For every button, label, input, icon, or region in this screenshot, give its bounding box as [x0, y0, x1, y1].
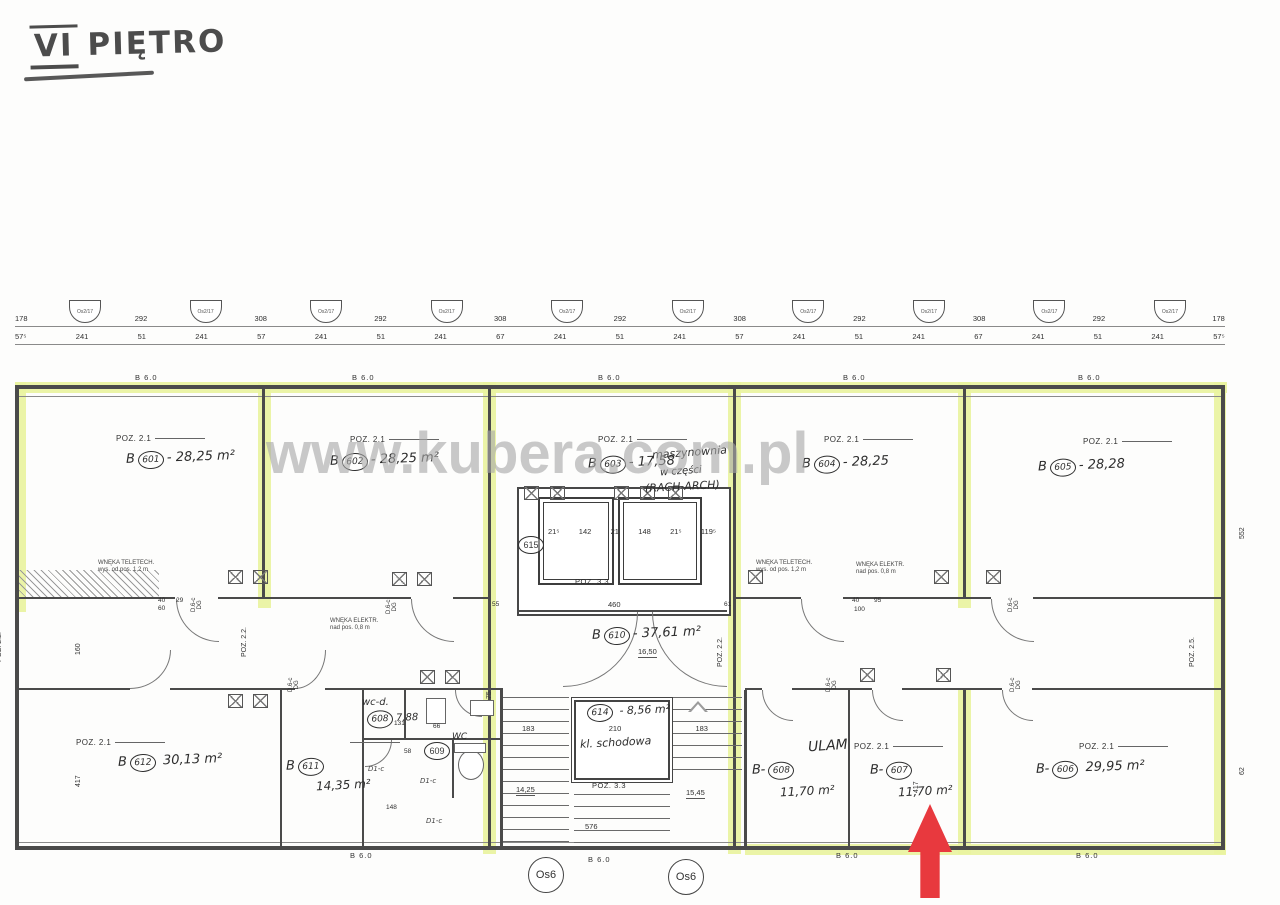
- room-number-bubble: 612: [130, 754, 157, 773]
- list-item: 51: [138, 332, 146, 341]
- poz-label: POZ. 2.1: [116, 434, 205, 443]
- list-item: 308: [254, 314, 267, 323]
- wall-segment: [15, 688, 130, 690]
- vertical-dimension: 160: [75, 643, 82, 655]
- list-item: 241: [912, 332, 925, 341]
- list-item: 142: [579, 527, 592, 536]
- room-bubble-609: 609: [424, 742, 450, 760]
- door-label-d1c: D1-c: [368, 766, 384, 773]
- beam-label: B 6.0: [588, 855, 611, 864]
- room-number-bubble: 606: [1052, 760, 1079, 779]
- room-prefix: B-: [752, 762, 766, 777]
- nook-line1: WNĘKA TELETECH.: [98, 560, 154, 567]
- beam-label: B 6.0: [843, 373, 866, 382]
- room-area: 37,61 m²: [641, 624, 701, 641]
- list-item: 241: [554, 332, 567, 341]
- room-area: 8,56 m²: [627, 703, 671, 717]
- beam-label: B 6.0: [350, 851, 373, 860]
- room-label-601: B601- 28,25 m²: [126, 448, 236, 470]
- dimension: 148: [386, 804, 397, 811]
- vertical-dimension: 62: [1239, 767, 1246, 775]
- wall-segment: [902, 688, 1002, 690]
- wall-segment: [170, 688, 295, 690]
- room-label-612: B612 30,13 m²: [118, 751, 223, 773]
- door-label-d1c: D1-c: [420, 778, 436, 785]
- door-arc: [762, 690, 793, 721]
- room-label-611: B611: [286, 757, 328, 776]
- door-code-label: D.6-cDG: [288, 678, 300, 692]
- room-number-bubble: 601: [138, 451, 165, 470]
- list-item: 241: [434, 332, 447, 341]
- list-item: 57: [257, 332, 265, 341]
- wall-segment: [15, 846, 1225, 850]
- door-grade: DG: [1016, 680, 1022, 689]
- nook-annotation: WNĘKA TELETECH. wys. od pos. 1,2 m: [98, 560, 154, 574]
- door-arc: [801, 599, 844, 642]
- wall-segment: [1033, 597, 1223, 599]
- list-item: 51: [1094, 332, 1102, 341]
- nook-line1: WNĘKA ELEKTR.: [856, 562, 904, 569]
- floor-roman-numeral: VI: [29, 24, 78, 69]
- cistern-fixture: [454, 743, 486, 753]
- dimension-line: [15, 344, 1225, 345]
- list-item: 51: [855, 332, 863, 341]
- wall-hatch-box: [445, 670, 460, 684]
- room-label-610: B610- 37,61 m²: [592, 624, 702, 646]
- dimension: 58: [404, 748, 411, 755]
- poz-label: POZ. 2.1: [1079, 742, 1168, 751]
- nook-line1: WNĘKA ELEKTR.: [330, 618, 378, 625]
- room-prefix: B-: [1036, 761, 1050, 776]
- nook-line2: wys. od pos. 1,2 m: [756, 567, 812, 574]
- list-item: 292: [374, 314, 387, 323]
- wall-segment: [218, 597, 411, 599]
- list-item: 21⁵: [548, 527, 559, 536]
- dimension-row-1: 178292308292308292308292308292178: [15, 314, 1225, 323]
- poz-vertical-label: POZ. 2.2.: [717, 637, 724, 667]
- list-item: 292: [614, 314, 627, 323]
- room-prefix: B: [118, 755, 127, 770]
- wall-segment: [843, 597, 991, 599]
- dimension: 29: [176, 597, 183, 604]
- wall-segment: [453, 597, 490, 599]
- toilet-fixture: [458, 750, 484, 780]
- room-number-bubble: 608: [768, 761, 795, 780]
- beam-label: B 6.0: [836, 851, 859, 860]
- wall-segment: [745, 688, 762, 690]
- poz-vertical-label: POZ. 2.2.: [0, 632, 3, 662]
- stair-treads: [574, 782, 670, 844]
- beam-label: B 6.0: [598, 373, 621, 382]
- dimension: 40: [852, 597, 859, 604]
- wall-segment: [262, 385, 265, 599]
- wall-segment: [848, 690, 850, 846]
- separator: -: [167, 450, 172, 465]
- nook-line2: wys. od pos. 1,2 m: [98, 567, 154, 574]
- elevator-shaft: [618, 497, 702, 585]
- nook-annotation: WNĘKA TELETECH. wys. od pos. 1,2 m: [756, 560, 812, 574]
- list-item: 51: [377, 332, 385, 341]
- door-arc: [1002, 690, 1033, 721]
- list-item: 241: [1151, 332, 1164, 341]
- wall-hatch-box: [860, 668, 875, 682]
- door-grade: DG: [1014, 600, 1020, 609]
- dimension: 40: [158, 597, 165, 604]
- axis-bubble-os6: Os6: [528, 857, 564, 893]
- vertical-dimension: 552: [1239, 527, 1246, 539]
- door-code-label: D.6-cDG: [826, 678, 838, 692]
- vertical-dimension: 417: [75, 775, 82, 787]
- list-item: 67: [974, 332, 982, 341]
- elevator-dimensions: 21⁵1422114821⁵119⁵: [548, 527, 716, 536]
- page-title: VIPIĘTRO: [30, 23, 227, 64]
- separator: -: [633, 626, 638, 641]
- wall-segment: [1221, 385, 1225, 850]
- poz-vertical-label: POZ. 2.2.: [241, 627, 248, 657]
- poz-vertical-label: POZ. 2.5.: [1189, 637, 1196, 667]
- list-item: 51: [616, 332, 624, 341]
- title-underline: [24, 71, 154, 82]
- wall-hatch-box: [392, 572, 407, 586]
- dimension-line: [15, 326, 1225, 327]
- list-item: 178: [1212, 314, 1225, 323]
- wall-hatch-box: [228, 694, 243, 708]
- nook-annotation: WNĘKA ELEKTR. nad pos. 0,8 m: [330, 618, 378, 632]
- red-highlight-arrow: [908, 804, 952, 898]
- room-label-607: B-607: [870, 761, 916, 781]
- room-label-606: B-606 29,95 m²: [1036, 758, 1145, 780]
- sink-fixture: [426, 698, 446, 724]
- dimension: 66: [433, 723, 440, 730]
- wall-hatch-box: [417, 572, 432, 586]
- wall-segment: [733, 597, 801, 599]
- room-prefix: B: [286, 758, 295, 773]
- wall-hatch-box: [550, 486, 565, 500]
- list-item: 241: [76, 332, 89, 341]
- beam-label: B 6.0: [135, 373, 158, 382]
- beam-label: B 6.0: [1078, 373, 1101, 382]
- poz-label: POZ. 3.3: [575, 577, 609, 586]
- watermark: www.kubera.com.pl: [266, 420, 1046, 487]
- wall-segment: [15, 597, 175, 599]
- wall-line: [15, 396, 1225, 397]
- door-grade: DG: [294, 680, 300, 689]
- dimension: 61: [724, 601, 731, 608]
- dimension: 95: [874, 597, 881, 604]
- door-arc: [130, 650, 171, 689]
- room-number-bubble: 614: [587, 703, 614, 722]
- list-item: 21: [611, 527, 619, 536]
- sink-fixture: [470, 700, 494, 716]
- door-code-label: D.6-cDG: [386, 600, 398, 614]
- door-label-d1c: D1-c: [426, 818, 442, 825]
- wall-hatch-box: [614, 486, 629, 500]
- room-number-bubble: 605: [1050, 458, 1077, 477]
- level-mark: 14,25: [516, 785, 535, 796]
- separator: -: [619, 704, 623, 717]
- list-item: 241: [793, 332, 806, 341]
- vertical-dimension: 417: [913, 781, 920, 793]
- wall-hatch-box: [228, 570, 243, 584]
- dimension: 100: [854, 606, 865, 613]
- vertical-dimension: 75: [486, 691, 493, 699]
- stair-treads: [503, 697, 569, 845]
- room-area: 28,25 m²: [175, 448, 235, 465]
- wall-segment: [744, 690, 747, 850]
- beam-label: B 6.0: [352, 373, 375, 382]
- list-item: 67: [496, 332, 504, 341]
- wall-segment: [15, 385, 1225, 389]
- list-item: 57: [735, 332, 743, 341]
- room-label-614: 614 - 8,56 m²: [584, 702, 671, 723]
- stair-dimensions: 183210183: [522, 724, 708, 733]
- nook-line2: nad pos. 0,8 m: [330, 625, 378, 632]
- poz-label: POZ. 2.1: [76, 738, 165, 747]
- dimension: 576: [585, 822, 598, 831]
- list-item: 183: [695, 724, 708, 733]
- door-code-label: D.6-cDG: [1010, 678, 1022, 692]
- room-name-wcd: wc-d.: [362, 697, 389, 708]
- room-number-bubble: 610: [604, 627, 631, 646]
- room-area: 29,95 m²: [1085, 758, 1145, 775]
- room-number-bubble: 611: [298, 757, 325, 776]
- dimension: 55: [492, 601, 499, 608]
- door-grade: DG: [392, 602, 398, 611]
- poz-label: POZ. 2.1: [854, 742, 943, 751]
- list-item: 148: [638, 527, 651, 536]
- dimension: 60: [158, 605, 165, 612]
- list-item: 210: [609, 724, 622, 733]
- wall-hatch-box: [253, 570, 268, 584]
- wall-segment: [280, 690, 282, 846]
- list-item: 241: [673, 332, 686, 341]
- room-prefix: B: [592, 628, 601, 643]
- level-mark: 15,45: [686, 788, 705, 799]
- list-item: 241: [1032, 332, 1045, 341]
- door-grade: DG: [197, 600, 203, 609]
- room-area: 28,28: [1087, 456, 1125, 472]
- list-item: 308: [973, 314, 986, 323]
- list-item: 119⁵: [701, 527, 716, 536]
- nook-line2: nad pos. 0,8 m: [856, 569, 904, 576]
- room-number-bubble: 608: [367, 710, 394, 729]
- dimension-row-2: 57⁵2415124157241512416724151241572415124…: [15, 332, 1225, 341]
- list-item: 57⁵: [1213, 332, 1224, 341]
- wall-hatch-box: [936, 668, 951, 682]
- separator: -: [1079, 458, 1084, 473]
- room-bubble-615: 615: [518, 536, 544, 554]
- room-label-605: B605- 28,28: [1038, 456, 1126, 477]
- stair-direction-arrow: [688, 701, 708, 712]
- list-item: 308: [733, 314, 746, 323]
- door-arc: [563, 612, 638, 687]
- list-item: 241: [315, 332, 328, 341]
- list-item: 292: [1093, 314, 1106, 323]
- list-item: 183: [522, 724, 535, 733]
- nook-annotation: WNĘKA ELEKTR. nad pos. 0,8 m: [856, 562, 904, 576]
- wall-segment: [15, 385, 19, 850]
- floor-word: PIĘTRO: [87, 23, 227, 63]
- list-item: 241: [195, 332, 208, 341]
- axis-bubble-os6: Os6: [668, 859, 704, 895]
- door-code-label: D.6-cDG: [191, 598, 203, 612]
- room-area: 30,13 m²: [163, 751, 223, 768]
- dimension: 460: [608, 600, 621, 609]
- room-prefix: B-: [870, 762, 884, 777]
- list-item: 292: [135, 314, 148, 323]
- list-item: 21⁵: [670, 527, 681, 536]
- hatched-wall: [19, 570, 159, 598]
- room-area-608: 11,70 m²: [780, 783, 835, 800]
- poz-label: POZ. 2.1: [1083, 437, 1172, 446]
- door-arc: [411, 599, 454, 642]
- wall-segment: [963, 690, 966, 850]
- door-arc: [652, 612, 727, 687]
- room-prefix: B: [126, 452, 135, 467]
- nook-line1: WNĘKA TELETECH.: [756, 560, 812, 567]
- poz-label: [346, 742, 400, 743]
- room-number-bubble: 607: [886, 761, 913, 780]
- wall-segment: [963, 385, 966, 599]
- door-grade: DG: [832, 680, 838, 689]
- poz-label: POZ. 3.3: [592, 781, 626, 790]
- room-area-607: 11,70 m²: [898, 783, 953, 800]
- scanned-floor-plan-page: VIPIĘTRO Os2/17Os2/17Os2/17Os2/17Os2/17O…: [0, 0, 1280, 905]
- room-name-wc: WC: [452, 732, 467, 742]
- wall-hatch-box: [986, 570, 1001, 584]
- door-code-label: D.6-cDG: [1008, 598, 1020, 612]
- room-label-608: B-608: [752, 761, 798, 781]
- wall-hatch-box: [420, 670, 435, 684]
- wall-hatch-box: [934, 570, 949, 584]
- list-item: 57⁵: [15, 332, 26, 341]
- list-item: 178: [15, 314, 28, 323]
- wall-hatch-box: [524, 486, 539, 500]
- room-area-611: 14,35 m²: [316, 777, 371, 794]
- beam-label: B 6.0: [1076, 851, 1099, 860]
- door-arc: [872, 690, 903, 721]
- room-label-wcd: 6087,88: [364, 709, 419, 729]
- dimension: 131: [394, 720, 405, 727]
- level-mark: 16,50: [638, 647, 657, 658]
- room-note-608: ULAM: [807, 737, 848, 756]
- door-arc: [365, 740, 392, 767]
- list-item: 308: [494, 314, 507, 323]
- wall-hatch-box: [253, 694, 268, 708]
- elevator-shaft: [538, 497, 614, 585]
- wall-segment: [1032, 688, 1223, 690]
- list-item: 292: [853, 314, 866, 323]
